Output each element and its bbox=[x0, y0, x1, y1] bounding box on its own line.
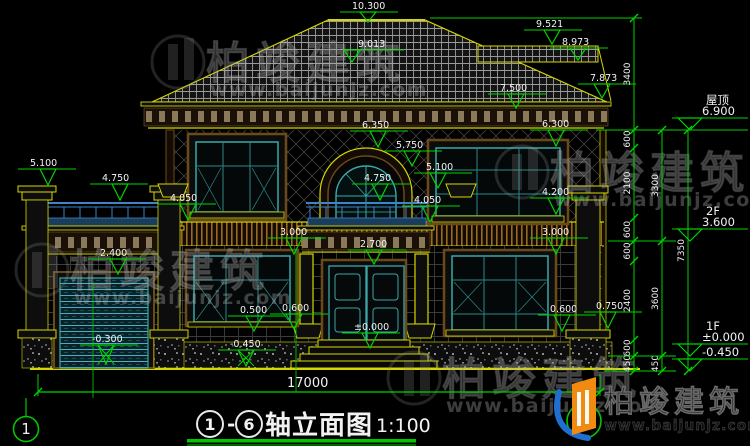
drawing-canvas: 柏竣建筑www.baijunjz.com柏竣建筑www.baijunjz.com… bbox=[0, 0, 750, 446]
floor-elevation: ±0.000 bbox=[702, 330, 745, 344]
title-axis-to: 6 bbox=[243, 415, 254, 434]
elevation-value: 2.400 bbox=[100, 248, 127, 259]
chain-dim-value: 2100 bbox=[623, 171, 633, 194]
brand-logo: 柏竣建筑 www.baijunjz.com bbox=[557, 377, 750, 438]
elevation-value: 8.973 bbox=[562, 37, 589, 48]
terrace-railing bbox=[28, 203, 178, 226]
chain-dim-value: 3600 bbox=[651, 287, 661, 310]
elevation-value: 9.521 bbox=[536, 19, 563, 30]
floor-level-marker: 屋顶6.900 bbox=[672, 93, 748, 130]
elevation-value: 0.500 bbox=[240, 305, 267, 316]
axis-bubble-1: 1 bbox=[14, 398, 39, 442]
chain-dim-value: 3400 bbox=[623, 62, 633, 85]
axis-bubble-1-label: 1 bbox=[21, 420, 31, 438]
elevation-value: 4.050 bbox=[414, 195, 441, 206]
elevation-value: 4.200 bbox=[542, 187, 569, 198]
floor-elevation: -0.450 bbox=[702, 345, 739, 359]
elevation-marker: 10.300 bbox=[340, 1, 398, 22]
window-2f-left bbox=[188, 134, 286, 220]
elevation-value: 7.873 bbox=[590, 73, 617, 84]
elevation-value: 6.350 bbox=[362, 120, 389, 131]
elevation-value: 10.300 bbox=[352, 1, 385, 12]
title-dash: - bbox=[227, 412, 235, 436]
elevation-value: 2.700 bbox=[360, 239, 387, 250]
elevation-value: 3.000 bbox=[542, 227, 569, 238]
elevation-value: 6.300 bbox=[542, 119, 569, 130]
chain-dim-value: 3300 bbox=[651, 174, 661, 197]
cad-elevation-drawing: 柏竣建筑www.baijunjz.com柏竣建筑www.baijunjz.com… bbox=[0, 0, 750, 446]
logo-brand-text: 柏竣建筑 bbox=[604, 385, 744, 420]
elevation-value: 0.600 bbox=[282, 303, 309, 314]
chain-dim-value: 450 bbox=[623, 355, 633, 372]
porch-planter-right bbox=[405, 324, 435, 338]
chain-dim-value: 600 bbox=[623, 242, 633, 259]
elevation-value: 7.500 bbox=[500, 83, 527, 94]
logo-tower bbox=[572, 377, 596, 435]
elevation-value: 0.750 bbox=[596, 301, 623, 312]
elevation-value: 0.600 bbox=[550, 304, 577, 315]
drawing-title: 1 - 6 轴立面图 1:100 bbox=[187, 410, 431, 445]
elevation-marker: 4.750 bbox=[90, 173, 148, 200]
chain-dim-value: 7350 bbox=[677, 239, 687, 262]
elevation-value: 4.750 bbox=[102, 173, 129, 184]
chain-dim-value: 2400 bbox=[623, 289, 633, 312]
elevation-value: -0.300 bbox=[92, 334, 123, 345]
elevation-value: 5.100 bbox=[30, 158, 57, 169]
logo-url-text: www.baijunjz.com bbox=[604, 418, 750, 434]
elevation-value: 4.750 bbox=[364, 173, 391, 184]
elevation-value: ±0.000 bbox=[354, 322, 389, 333]
window-1f-right bbox=[444, 250, 556, 336]
chain-dim-value: 600 bbox=[623, 130, 633, 147]
chain-dim-value: 600 bbox=[623, 339, 633, 356]
chain-dim-value: 600 bbox=[623, 221, 633, 238]
elevation-value: 3.000 bbox=[280, 227, 307, 238]
elevation-value: -0.450 bbox=[230, 339, 261, 350]
chain-dim-value: 450 bbox=[651, 355, 661, 372]
floor-elevation: 3.600 bbox=[702, 215, 735, 229]
elevation-value: 9.013 bbox=[358, 39, 385, 50]
floor-elevation: 6.900 bbox=[702, 104, 735, 118]
planter-right bbox=[446, 184, 476, 197]
elevation-value: 5.750 bbox=[396, 140, 423, 151]
elevation-value: 4.050 bbox=[170, 193, 197, 204]
porch-pillar-right bbox=[415, 254, 428, 324]
elevation-value: 5.100 bbox=[426, 162, 453, 173]
watermark-url: www.baijunjz.com bbox=[210, 79, 428, 101]
title-text: 轴立面图 bbox=[265, 410, 373, 441]
total-width-value: 17000 bbox=[287, 376, 328, 391]
title-axis-from: 1 bbox=[204, 415, 215, 434]
elevation-marker: 5.100 bbox=[18, 158, 76, 185]
title-scale: 1:100 bbox=[376, 415, 431, 437]
